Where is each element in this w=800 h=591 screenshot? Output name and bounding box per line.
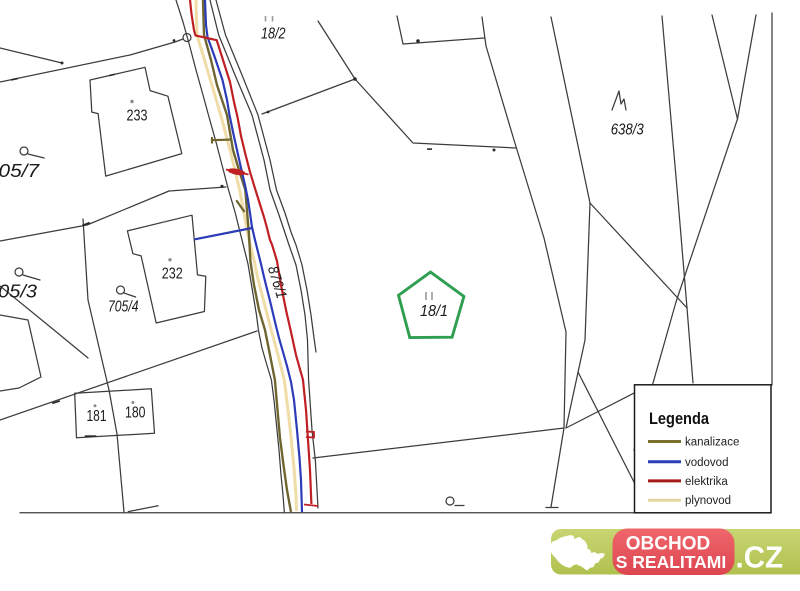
svg-text:18/1: 18/1 xyxy=(420,303,448,320)
svg-text:plynovod: plynovod xyxy=(685,495,731,507)
svg-text:elektrika: elektrika xyxy=(685,476,728,488)
svg-text:S REALITAMI: S REALITAMI xyxy=(616,552,727,572)
svg-text:vodovod: vodovod xyxy=(685,457,728,469)
svg-text:705/7: 705/7 xyxy=(0,161,40,181)
svg-text:705/4: 705/4 xyxy=(108,299,139,316)
svg-text:.CZ: .CZ xyxy=(736,540,784,575)
svg-text:638/3: 638/3 xyxy=(611,122,644,139)
svg-text:Legenda: Legenda xyxy=(649,409,709,428)
svg-text:232: 232 xyxy=(162,266,183,283)
svg-text:233: 233 xyxy=(127,108,148,125)
svg-text:181: 181 xyxy=(87,408,107,425)
svg-text:kanalizace: kanalizace xyxy=(685,437,739,449)
svg-text:705/3: 705/3 xyxy=(0,282,37,302)
svg-text:18/2: 18/2 xyxy=(261,26,286,43)
svg-text:180: 180 xyxy=(125,405,146,422)
